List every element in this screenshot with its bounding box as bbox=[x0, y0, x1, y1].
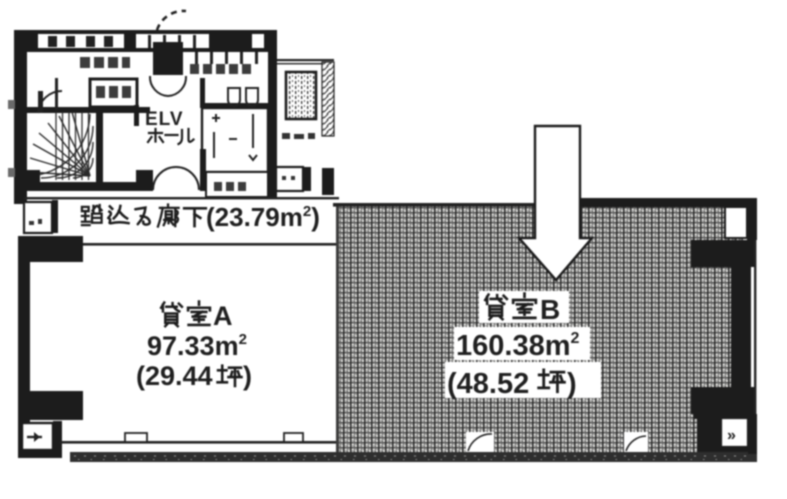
svg-text:ELV: ELV bbox=[145, 109, 184, 130]
svg-text:(23.79m2): (23.79m2) bbox=[206, 202, 320, 232]
svg-text:A: A bbox=[213, 301, 233, 331]
svg-text:B: B bbox=[540, 294, 560, 325]
svg-text:97.33m2: 97.33m2 bbox=[147, 331, 247, 361]
svg-text:160.38m2: 160.38m2 bbox=[456, 330, 580, 362]
svg-text:»: » bbox=[727, 427, 736, 444]
svg-text:): ) bbox=[567, 368, 577, 400]
svg-text:(48.52: (48.52 bbox=[447, 368, 529, 400]
svg-text:): ) bbox=[243, 361, 252, 391]
svg-text:(29.44: (29.44 bbox=[136, 361, 213, 391]
